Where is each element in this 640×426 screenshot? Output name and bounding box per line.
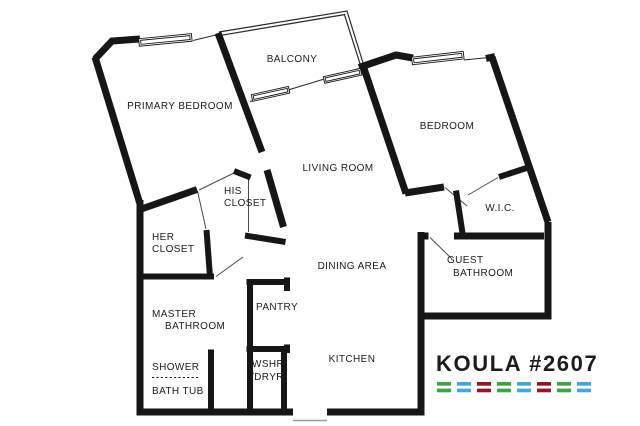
logo-dash-2 (457, 382, 471, 392)
logo-dash-5 (517, 382, 531, 392)
label-her-closet-1: HER (152, 232, 174, 243)
label-her-closet-2: CLOSET (152, 244, 194, 255)
label-washer-dryer-2: /DRYR (251, 372, 284, 383)
logo-dash-7 (557, 382, 571, 392)
label-balcony: BALCONY (267, 54, 318, 65)
logo-dash-1 (437, 382, 451, 392)
logo-dash-3 (477, 382, 491, 392)
floor-plan-drawing: BALCONY PRIMARY BEDROOM BEDROOM LIVING R… (0, 0, 640, 426)
label-kitchen: KITCHEN (329, 354, 376, 365)
label-his-closet-1: HIS (224, 186, 242, 197)
label-bath-tub: BATH TUB (152, 386, 204, 397)
logo: KOULA #2607 (436, 351, 598, 392)
logo-text: KOULA #2607 (436, 351, 598, 376)
label-shower: SHOWER (152, 362, 199, 373)
logo-dash-8 (577, 382, 591, 392)
wall-closets (137, 171, 286, 277)
label-master-bathroom-2: BATHROOM (165, 321, 225, 332)
label-bedroom: BEDROOM (420, 121, 474, 132)
label-master-bathroom-1: MASTER (152, 309, 196, 320)
label-living-room: LIVING ROOM (302, 163, 373, 174)
wall-wic (456, 168, 528, 234)
label-wic: W.I.C. (485, 203, 515, 214)
floor-plan-page: BALCONY PRIMARY BEDROOM BEDROOM LIVING R… (0, 0, 640, 426)
windows-layer (139, 34, 464, 102)
wall-primary-bedroom (95, 39, 197, 210)
label-his-closet-2: CLOSET (224, 198, 266, 209)
window-icon-bedroom (412, 51, 465, 64)
label-primary-bedroom: PRIMARY BEDROOM (127, 101, 233, 112)
label-guest-bathroom-1: GUEST (447, 255, 483, 266)
window-icon-living-left (251, 86, 290, 101)
logo-dash-4 (497, 382, 511, 392)
label-dining-area: DINING AREA (318, 261, 387, 272)
window-icon-primary (139, 34, 192, 47)
logo-dashes (437, 382, 591, 392)
label-pantry: PANTRY (256, 302, 298, 313)
label-guest-bathroom-2: BATHROOM (453, 268, 513, 279)
label-washer-dryer-1: WSHR (252, 359, 284, 370)
wall-right-lower (418, 222, 552, 415)
logo-dash-6 (537, 382, 551, 392)
wall-bedroom (359, 55, 548, 222)
wall-pantry-utility (247, 278, 290, 414)
labels-layer: BALCONY PRIMARY BEDROOM BEDROOM LIVING R… (127, 54, 515, 397)
window-icon-living-right (323, 68, 362, 83)
